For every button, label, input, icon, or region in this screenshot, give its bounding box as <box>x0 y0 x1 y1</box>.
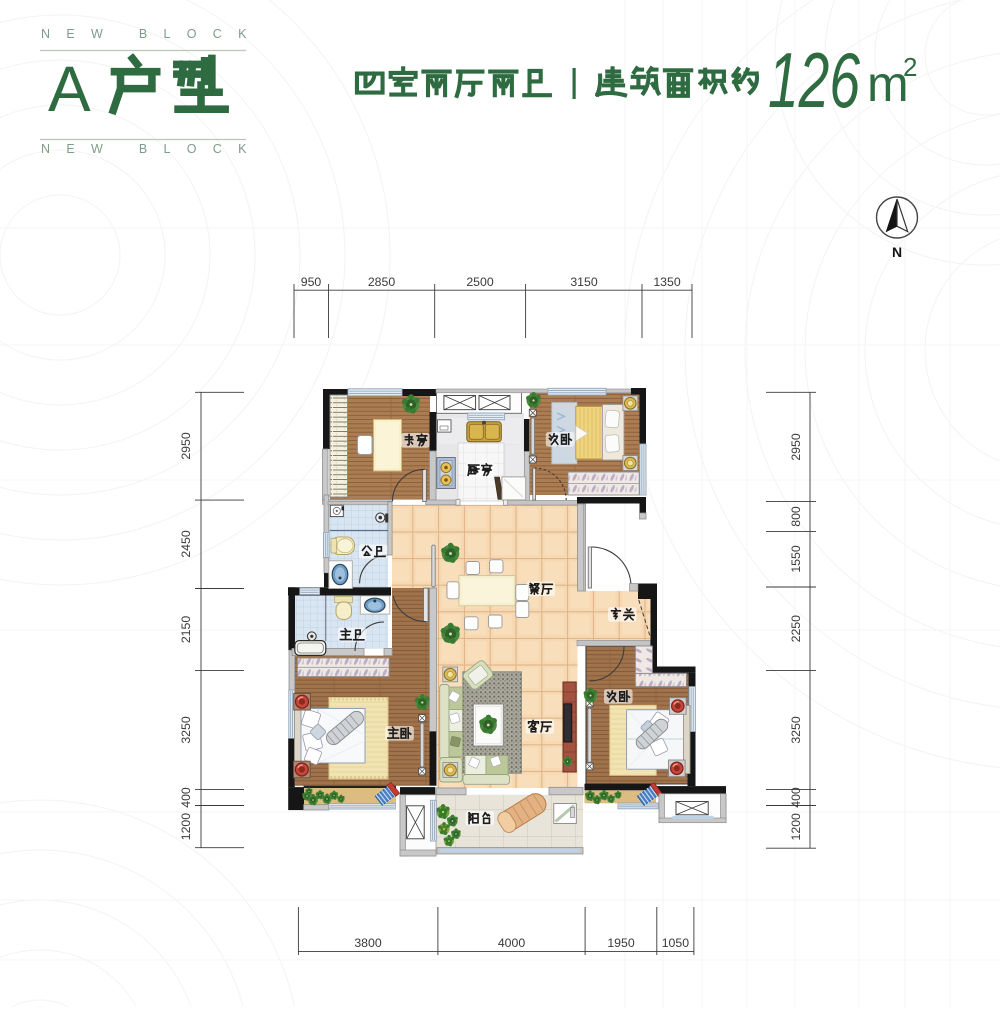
svg-text:1550: 1550 <box>789 545 803 573</box>
svg-text:2950: 2950 <box>179 432 193 460</box>
svg-text:400: 400 <box>789 787 803 808</box>
svg-text:1050: 1050 <box>662 936 690 950</box>
svg-text:1200: 1200 <box>179 813 193 841</box>
svg-text:3250: 3250 <box>789 716 803 744</box>
svg-text:800: 800 <box>789 506 803 527</box>
svg-text:3150: 3150 <box>570 275 598 289</box>
svg-text:1950: 1950 <box>607 936 635 950</box>
svg-text:950: 950 <box>301 275 322 289</box>
svg-text:2250: 2250 <box>789 615 803 643</box>
svg-text:1200: 1200 <box>789 813 803 841</box>
svg-text:1350: 1350 <box>653 275 681 289</box>
svg-text:2500: 2500 <box>466 275 494 289</box>
svg-text:A: A <box>48 53 91 125</box>
svg-text:4000: 4000 <box>498 936 526 950</box>
svg-text:NEW BLOCK: NEW BLOCK <box>41 142 263 156</box>
svg-text:N: N <box>892 244 902 260</box>
svg-text:3250: 3250 <box>179 716 193 744</box>
svg-text:2450: 2450 <box>179 530 193 558</box>
svg-text:2150: 2150 <box>179 616 193 644</box>
svg-text:NEW BLOCK: NEW BLOCK <box>41 27 263 41</box>
svg-text:2950: 2950 <box>789 433 803 461</box>
svg-text:3800: 3800 <box>354 936 382 950</box>
svg-text:400: 400 <box>179 787 193 808</box>
svg-text:126: 126 <box>768 36 860 124</box>
svg-text:2: 2 <box>903 52 917 82</box>
svg-text:2850: 2850 <box>368 275 396 289</box>
